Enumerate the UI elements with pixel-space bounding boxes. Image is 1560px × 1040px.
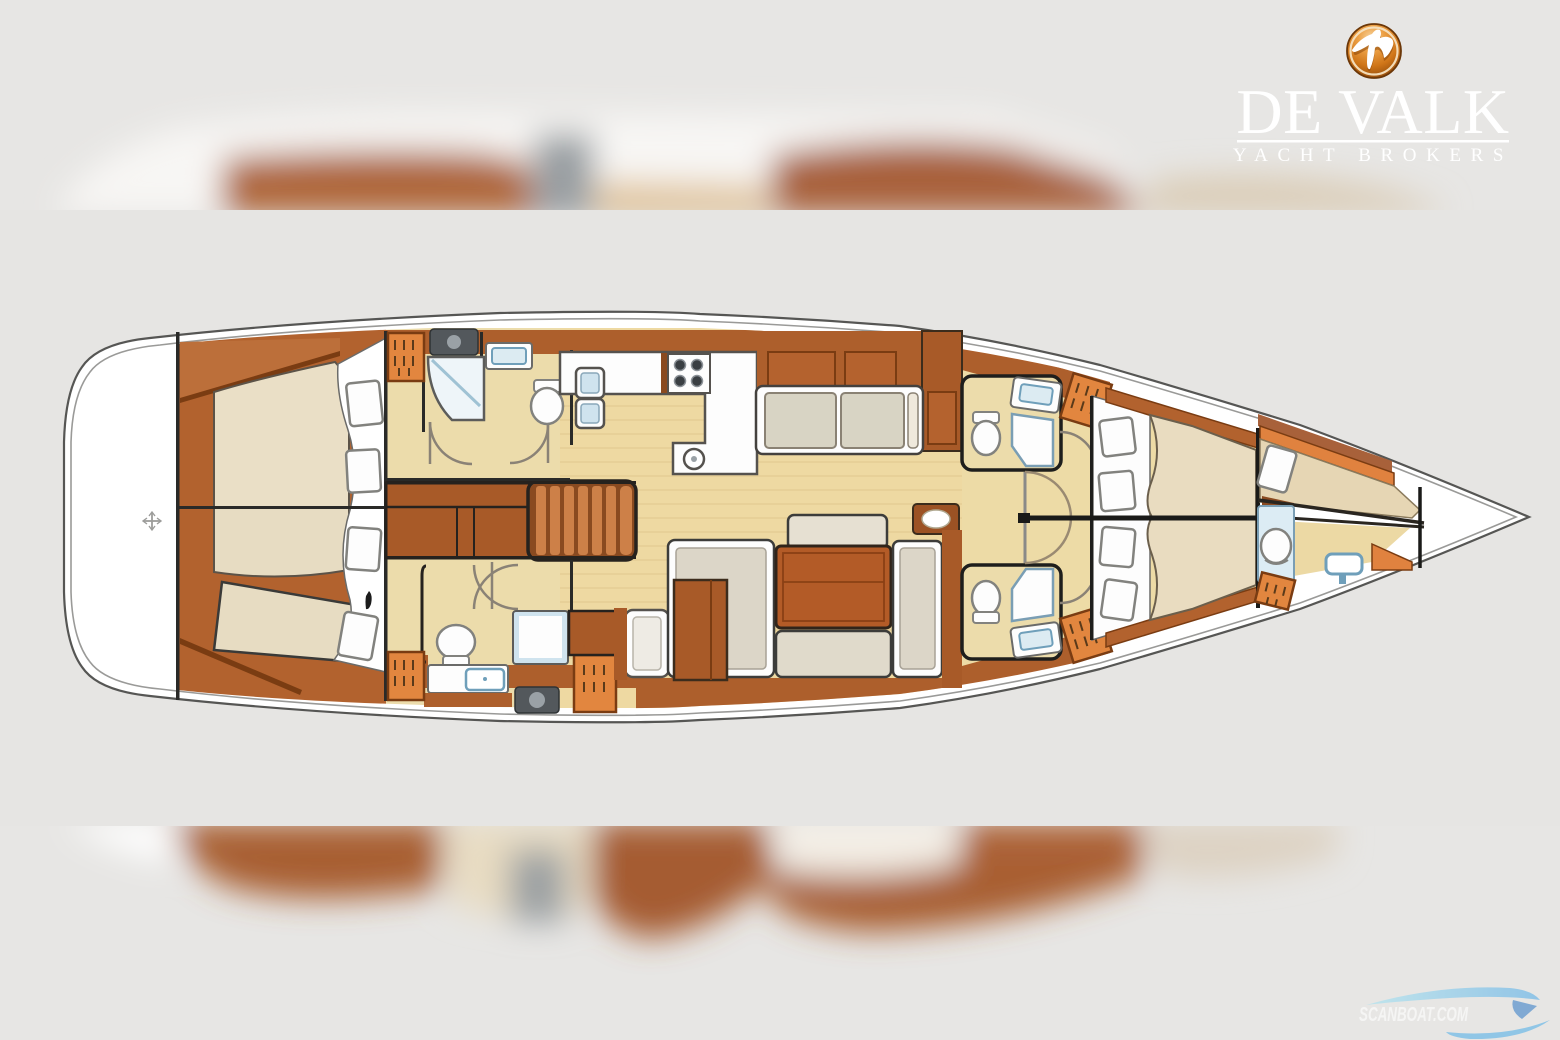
svg-text:YACHT BROKERS: YACHT BROKERS [1233, 145, 1513, 166]
svg-text:DE VALK: DE VALK [1236, 76, 1509, 147]
svg-text:SCANBOAT.COM: SCANBOAT.COM [1359, 1004, 1469, 1026]
